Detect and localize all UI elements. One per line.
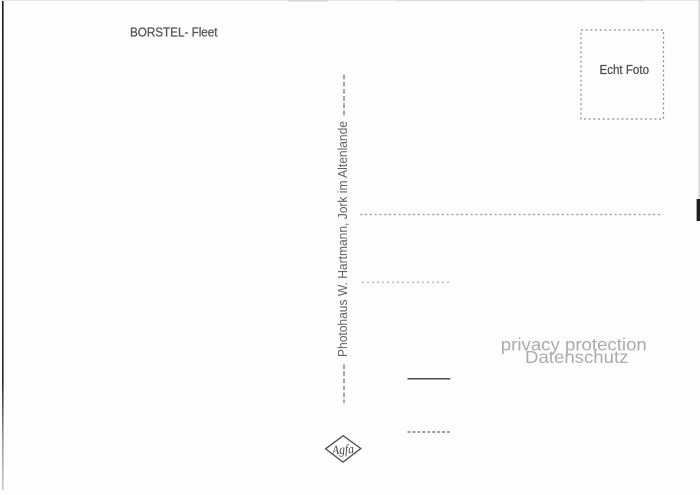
svg-text:BORSTEL- Fleet: BORSTEL- Fleet [130,25,218,40]
svg-text:Agfa: Agfa [330,441,354,458]
svg-text:Echt Foto: Echt Foto [600,62,650,77]
svg-text:Photohaus W. Hartmann, Jork im: Photohaus W. Hartmann, Jork im Altenland… [335,121,350,357]
svg-text:Datenschutz: Datenschutz [525,347,629,367]
